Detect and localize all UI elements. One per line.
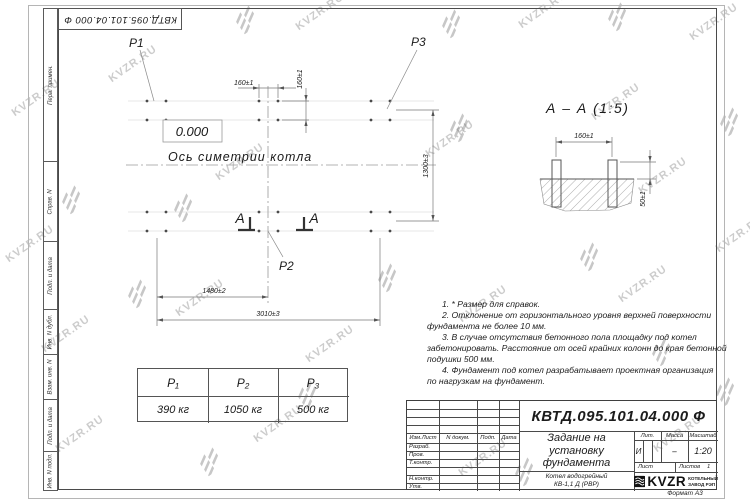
dim-1300-lines bbox=[396, 110, 439, 221]
note-line: 2. Отклонение от горизонтального уровня … bbox=[427, 310, 729, 321]
tb-row-utv: Утв. bbox=[409, 483, 439, 491]
tb-line bbox=[643, 440, 644, 462]
concrete-pad bbox=[540, 179, 634, 211]
tb-col-date: Дата bbox=[499, 433, 519, 443]
tb-product-line: КВ-1,1 Д (РВР) bbox=[554, 481, 599, 489]
tb-col-sign: Подп. bbox=[477, 433, 499, 443]
section-view: А – А (1:5) 160±1 50±1 bbox=[540, 100, 656, 211]
arrow bbox=[157, 295, 163, 298]
arrow bbox=[157, 318, 163, 321]
load-table: P₁ P₂ P₃ 390 кг 1050 кг 500 кг bbox=[137, 368, 348, 422]
dim-160h: 160±1 bbox=[234, 80, 254, 87]
tb-product: Котел водогрейный КВ-1,1 Д (РВР) bbox=[519, 471, 634, 491]
dim-160v-lines bbox=[282, 88, 309, 133]
arrow bbox=[648, 156, 651, 162]
tb-line bbox=[499, 401, 500, 491]
tb-logo-area: KVZR КОТЕЛЬНЫЙ ЗАВОД РЭП bbox=[634, 472, 718, 491]
tb-scale-label: Масштаб bbox=[688, 431, 718, 440]
arrow bbox=[304, 120, 307, 126]
table-header-p3: P₃ bbox=[278, 369, 348, 396]
table-value-p2: 1050 кг bbox=[208, 396, 278, 423]
tb-title-line: Задание на bbox=[547, 432, 606, 445]
tb-line bbox=[439, 401, 440, 491]
tb-col-izm: Изм.Лист bbox=[407, 433, 439, 443]
dim-160v: 160±1 bbox=[297, 69, 304, 89]
tb-sheets-value: 1 bbox=[707, 462, 717, 472]
dim-1480-lines bbox=[157, 238, 268, 326]
table-value-p1: 390 кг bbox=[138, 396, 208, 423]
tb-line bbox=[652, 440, 653, 462]
tb-title-line: фундамента bbox=[543, 457, 611, 470]
load-label-p2: Р2 bbox=[279, 259, 294, 273]
anchor-bolts bbox=[146, 100, 392, 233]
tb-row-prov: Пров. bbox=[409, 451, 439, 459]
tb-title: Задание на установку фундамента bbox=[519, 431, 634, 471]
tb-line bbox=[407, 467, 519, 468]
arrow bbox=[556, 140, 562, 143]
axis-label: Ось симетрии котла bbox=[168, 150, 312, 164]
section-letter-left: А bbox=[234, 210, 244, 226]
title-block: Изм.Лист N докум. Подп. Дата Разраб. Про… bbox=[406, 400, 717, 490]
arrow bbox=[262, 295, 268, 298]
dim-section-160: 160±1 bbox=[574, 133, 594, 140]
tb-row-tkontr: Т.контр. bbox=[409, 459, 439, 467]
arrow bbox=[431, 215, 434, 221]
tb-mass-value: – bbox=[661, 440, 688, 462]
tb-col-doc: N докум. bbox=[439, 433, 477, 443]
kvzr-logo-icon bbox=[634, 475, 645, 488]
note-line: по нагрузкам на фундамент. bbox=[427, 376, 729, 387]
section-letter-right: А bbox=[308, 210, 318, 226]
note-line: забетонировать. Расстояние от осей крайн… bbox=[427, 343, 729, 354]
arrow bbox=[253, 86, 259, 89]
elevation-value: 0.000 bbox=[176, 124, 209, 139]
table-header-p2: P₂ bbox=[208, 369, 278, 396]
dim-section-50: 50±1 bbox=[640, 191, 647, 207]
tb-line bbox=[407, 425, 519, 426]
tb-document-number: КВТД.095.101.04.000 Ф bbox=[519, 401, 718, 431]
tb-row-razrab: Разраб. bbox=[409, 443, 439, 451]
table-value-p3: 500 кг bbox=[278, 396, 348, 423]
table-header-p1: P₁ bbox=[138, 369, 208, 396]
arrow bbox=[606, 140, 612, 143]
format-label: Формат А3 bbox=[650, 490, 720, 499]
tb-mass-label: Масса bbox=[661, 431, 688, 440]
note-line: 1. * Размер для справок. bbox=[427, 299, 729, 310]
tb-logo-text: KVZR bbox=[647, 474, 686, 489]
tb-line bbox=[675, 462, 676, 472]
load-label-p3: Р3 bbox=[411, 35, 426, 49]
tb-sheets-label: Листов bbox=[679, 462, 704, 472]
tb-lit-label: Лит. bbox=[634, 431, 661, 440]
arrow bbox=[374, 318, 380, 321]
tb-line bbox=[477, 401, 478, 491]
note-line: фундамента не более 10 мм. bbox=[427, 321, 729, 332]
tb-scale-value: 1:20 bbox=[688, 440, 718, 462]
tb-line bbox=[407, 409, 519, 410]
plan-view: Р1 Р3 Р2 0.000 Ось симетрии котла 160±1 … bbox=[126, 35, 439, 326]
dim-section-160-lines bbox=[556, 137, 612, 157]
section-title: А – А (1:5) bbox=[545, 100, 629, 116]
tb-sheet-label: Лист bbox=[638, 462, 673, 472]
dim-1300: 1300±3 bbox=[423, 154, 430, 177]
drawing-sheet: KVZR.RUKVZR.RUKVZR.RUKVZR.RUKVZR.RUKVZR.… bbox=[0, 0, 750, 500]
dim-3010: 3010±3 bbox=[256, 311, 279, 318]
arrow bbox=[648, 179, 651, 185]
tb-product-line: Котел водогрейный bbox=[546, 473, 608, 481]
tb-lit-value: И bbox=[634, 440, 643, 462]
dim-1480: 1480±2 bbox=[202, 288, 225, 295]
technical-notes: 1. * Размер для справок. 2. Отклонение о… bbox=[427, 299, 729, 387]
section-marks: А А bbox=[234, 210, 318, 230]
tb-row-nkontr: Н.контр. bbox=[409, 475, 439, 483]
arrow bbox=[304, 95, 307, 101]
tb-line bbox=[407, 417, 519, 418]
arrow bbox=[278, 86, 284, 89]
load-label-p1: Р1 bbox=[129, 36, 144, 50]
arrow bbox=[431, 110, 434, 116]
note-line: подушки 500 мм. bbox=[427, 354, 729, 365]
note-line: 4. Фундамент под котел разрабатывает про… bbox=[427, 365, 729, 376]
tb-title-line: установку bbox=[549, 445, 604, 458]
note-line: 3. В случае отсутствия бетонного пола пл… bbox=[427, 332, 729, 343]
tb-logo-caption-line: ЗАВОД РЭП bbox=[688, 482, 718, 487]
